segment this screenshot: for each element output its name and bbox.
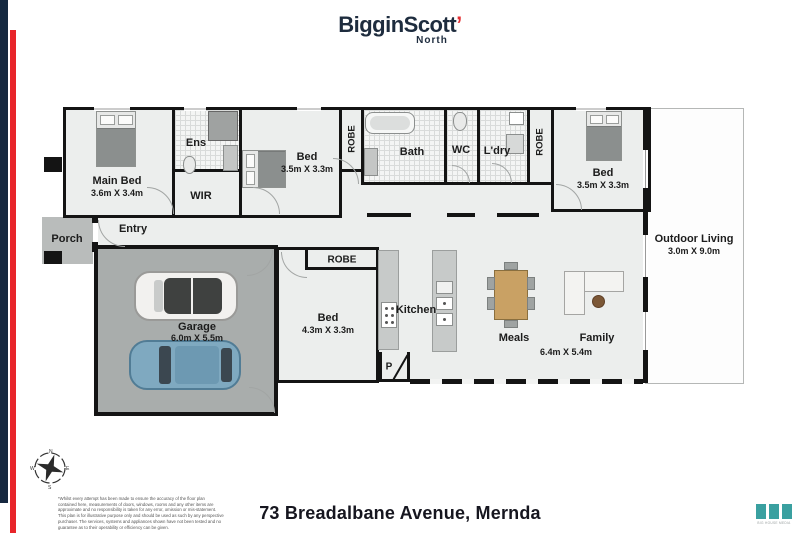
label-bed3: Bed bbox=[593, 167, 614, 179]
pillow bbox=[246, 171, 255, 185]
bed-icon bbox=[586, 111, 622, 161]
label-laundry: L'dry bbox=[484, 145, 510, 157]
car-roof bbox=[175, 346, 219, 384]
burner-dot bbox=[391, 307, 394, 310]
blanket bbox=[97, 128, 135, 166]
toilet-icon bbox=[453, 112, 467, 131]
label-porch: Porch bbox=[51, 233, 82, 245]
chair bbox=[527, 277, 535, 290]
white-car-icon bbox=[134, 271, 238, 321]
wall-segment bbox=[497, 213, 539, 217]
left-red-stripe bbox=[10, 30, 16, 533]
disclaimer-line: guarantee as to their operability or eff… bbox=[58, 525, 318, 531]
floorplan-page: BigginScott’ North bbox=[0, 0, 800, 533]
drain-dot bbox=[443, 318, 446, 321]
compass-w: W bbox=[30, 466, 35, 472]
media-logo-icon bbox=[756, 504, 766, 519]
vanity-icon bbox=[223, 145, 238, 171]
laundry-sink-icon bbox=[509, 112, 524, 125]
label-bed4: Bed bbox=[318, 312, 339, 324]
dims-outdoor-living: 3.0m X 9.0m bbox=[668, 246, 720, 256]
dining-table-icon bbox=[494, 270, 528, 320]
dims-main-bed: 3.6m X 3.4m bbox=[91, 188, 143, 198]
island-grill-icon bbox=[436, 281, 453, 294]
bed-icon bbox=[96, 111, 136, 167]
label-meals: Meals bbox=[499, 332, 530, 344]
window bbox=[643, 150, 648, 188]
agency-name-text: BigginScott bbox=[338, 12, 456, 37]
bathtub-icon bbox=[365, 112, 415, 134]
sink-icon bbox=[436, 297, 453, 310]
pillow bbox=[100, 115, 115, 125]
wall-segment bbox=[367, 213, 411, 217]
pillow bbox=[590, 115, 603, 124]
dims-bed2: 3.5m X 3.3m bbox=[281, 164, 333, 174]
label-ensuite: Ens bbox=[186, 137, 206, 149]
vanity-icon bbox=[364, 148, 378, 176]
car-roof bbox=[164, 278, 222, 314]
window bbox=[643, 235, 648, 277]
wall-rear-glazed bbox=[410, 379, 643, 384]
burner-dot bbox=[391, 321, 394, 324]
window bbox=[297, 107, 321, 111]
shower-icon bbox=[208, 111, 238, 141]
toilet-icon bbox=[183, 156, 196, 174]
chair bbox=[504, 320, 518, 328]
dims-bed3: 3.5m X 3.3m bbox=[577, 180, 629, 190]
chair bbox=[504, 262, 518, 270]
chair bbox=[527, 297, 535, 310]
car-windshield bbox=[154, 280, 163, 312]
car-windshield bbox=[159, 346, 171, 384]
window bbox=[643, 312, 648, 350]
compass-icon: N E S W bbox=[28, 446, 72, 490]
burner-dot bbox=[391, 314, 394, 317]
dims-family: 6.4m X 5.4m bbox=[540, 347, 592, 357]
bed-icon bbox=[242, 150, 286, 188]
dims-garage: 6.0m X 5.5m bbox=[171, 333, 223, 343]
dims-bed4: 4.3m X 3.3m bbox=[302, 325, 354, 335]
media-logo-icon bbox=[782, 504, 792, 519]
wall-segment bbox=[447, 213, 475, 217]
media-logo-caption: BIG HOUSE MEDIA bbox=[754, 521, 794, 525]
car-roofline bbox=[191, 278, 193, 314]
label-wc: WC bbox=[452, 144, 470, 156]
label-bath: Bath bbox=[400, 146, 424, 158]
label-bed2: Bed bbox=[297, 151, 318, 163]
burner-dot bbox=[385, 321, 388, 324]
compass-s: S bbox=[48, 485, 52, 490]
car-rear-window bbox=[221, 348, 232, 382]
porch-pillar bbox=[44, 157, 62, 172]
coffee-table-icon bbox=[592, 295, 605, 308]
kitchen-bench bbox=[378, 250, 399, 350]
stove-icon bbox=[381, 302, 397, 328]
burner-dot bbox=[385, 314, 388, 317]
window bbox=[184, 107, 206, 111]
sofa-icon bbox=[564, 271, 585, 315]
blue-car-icon bbox=[129, 340, 241, 390]
chair bbox=[487, 297, 495, 310]
label-robe2: ROBE bbox=[347, 125, 358, 152]
property-address: 73 Breadalbane Avenue, Mernda bbox=[0, 503, 800, 524]
label-garage: Garage bbox=[178, 321, 216, 333]
pillow bbox=[118, 115, 133, 125]
brand-tick-icon: ’ bbox=[456, 12, 462, 37]
compass-n: N bbox=[49, 449, 53, 455]
porch-pillar bbox=[44, 251, 62, 264]
label-wir: WIR bbox=[190, 190, 211, 202]
bathtub-inner bbox=[370, 116, 410, 130]
left-navy-stripe bbox=[0, 0, 8, 503]
agency-logo: BigginScott’ North bbox=[0, 12, 800, 46]
label-robe3: ROBE bbox=[535, 128, 546, 155]
pillow bbox=[606, 115, 619, 124]
label-robe4: ROBE bbox=[328, 255, 357, 266]
chair bbox=[487, 277, 495, 290]
label-pantry: P bbox=[386, 362, 393, 373]
drain-dot bbox=[443, 302, 446, 305]
sink-icon bbox=[436, 313, 453, 326]
compass-e: E bbox=[66, 466, 70, 472]
burner-dot bbox=[385, 307, 388, 310]
blanket bbox=[587, 126, 621, 160]
wall-segment bbox=[92, 242, 98, 252]
media-logo-icon bbox=[769, 504, 779, 519]
label-family: Family bbox=[580, 332, 615, 344]
label-kitchen: Kitchen bbox=[396, 304, 436, 316]
pillow bbox=[246, 154, 255, 168]
label-main-bed: Main Bed bbox=[93, 175, 142, 187]
label-outdoor-living: Outdoor Living bbox=[655, 233, 734, 245]
label-entry: Entry bbox=[119, 223, 147, 235]
